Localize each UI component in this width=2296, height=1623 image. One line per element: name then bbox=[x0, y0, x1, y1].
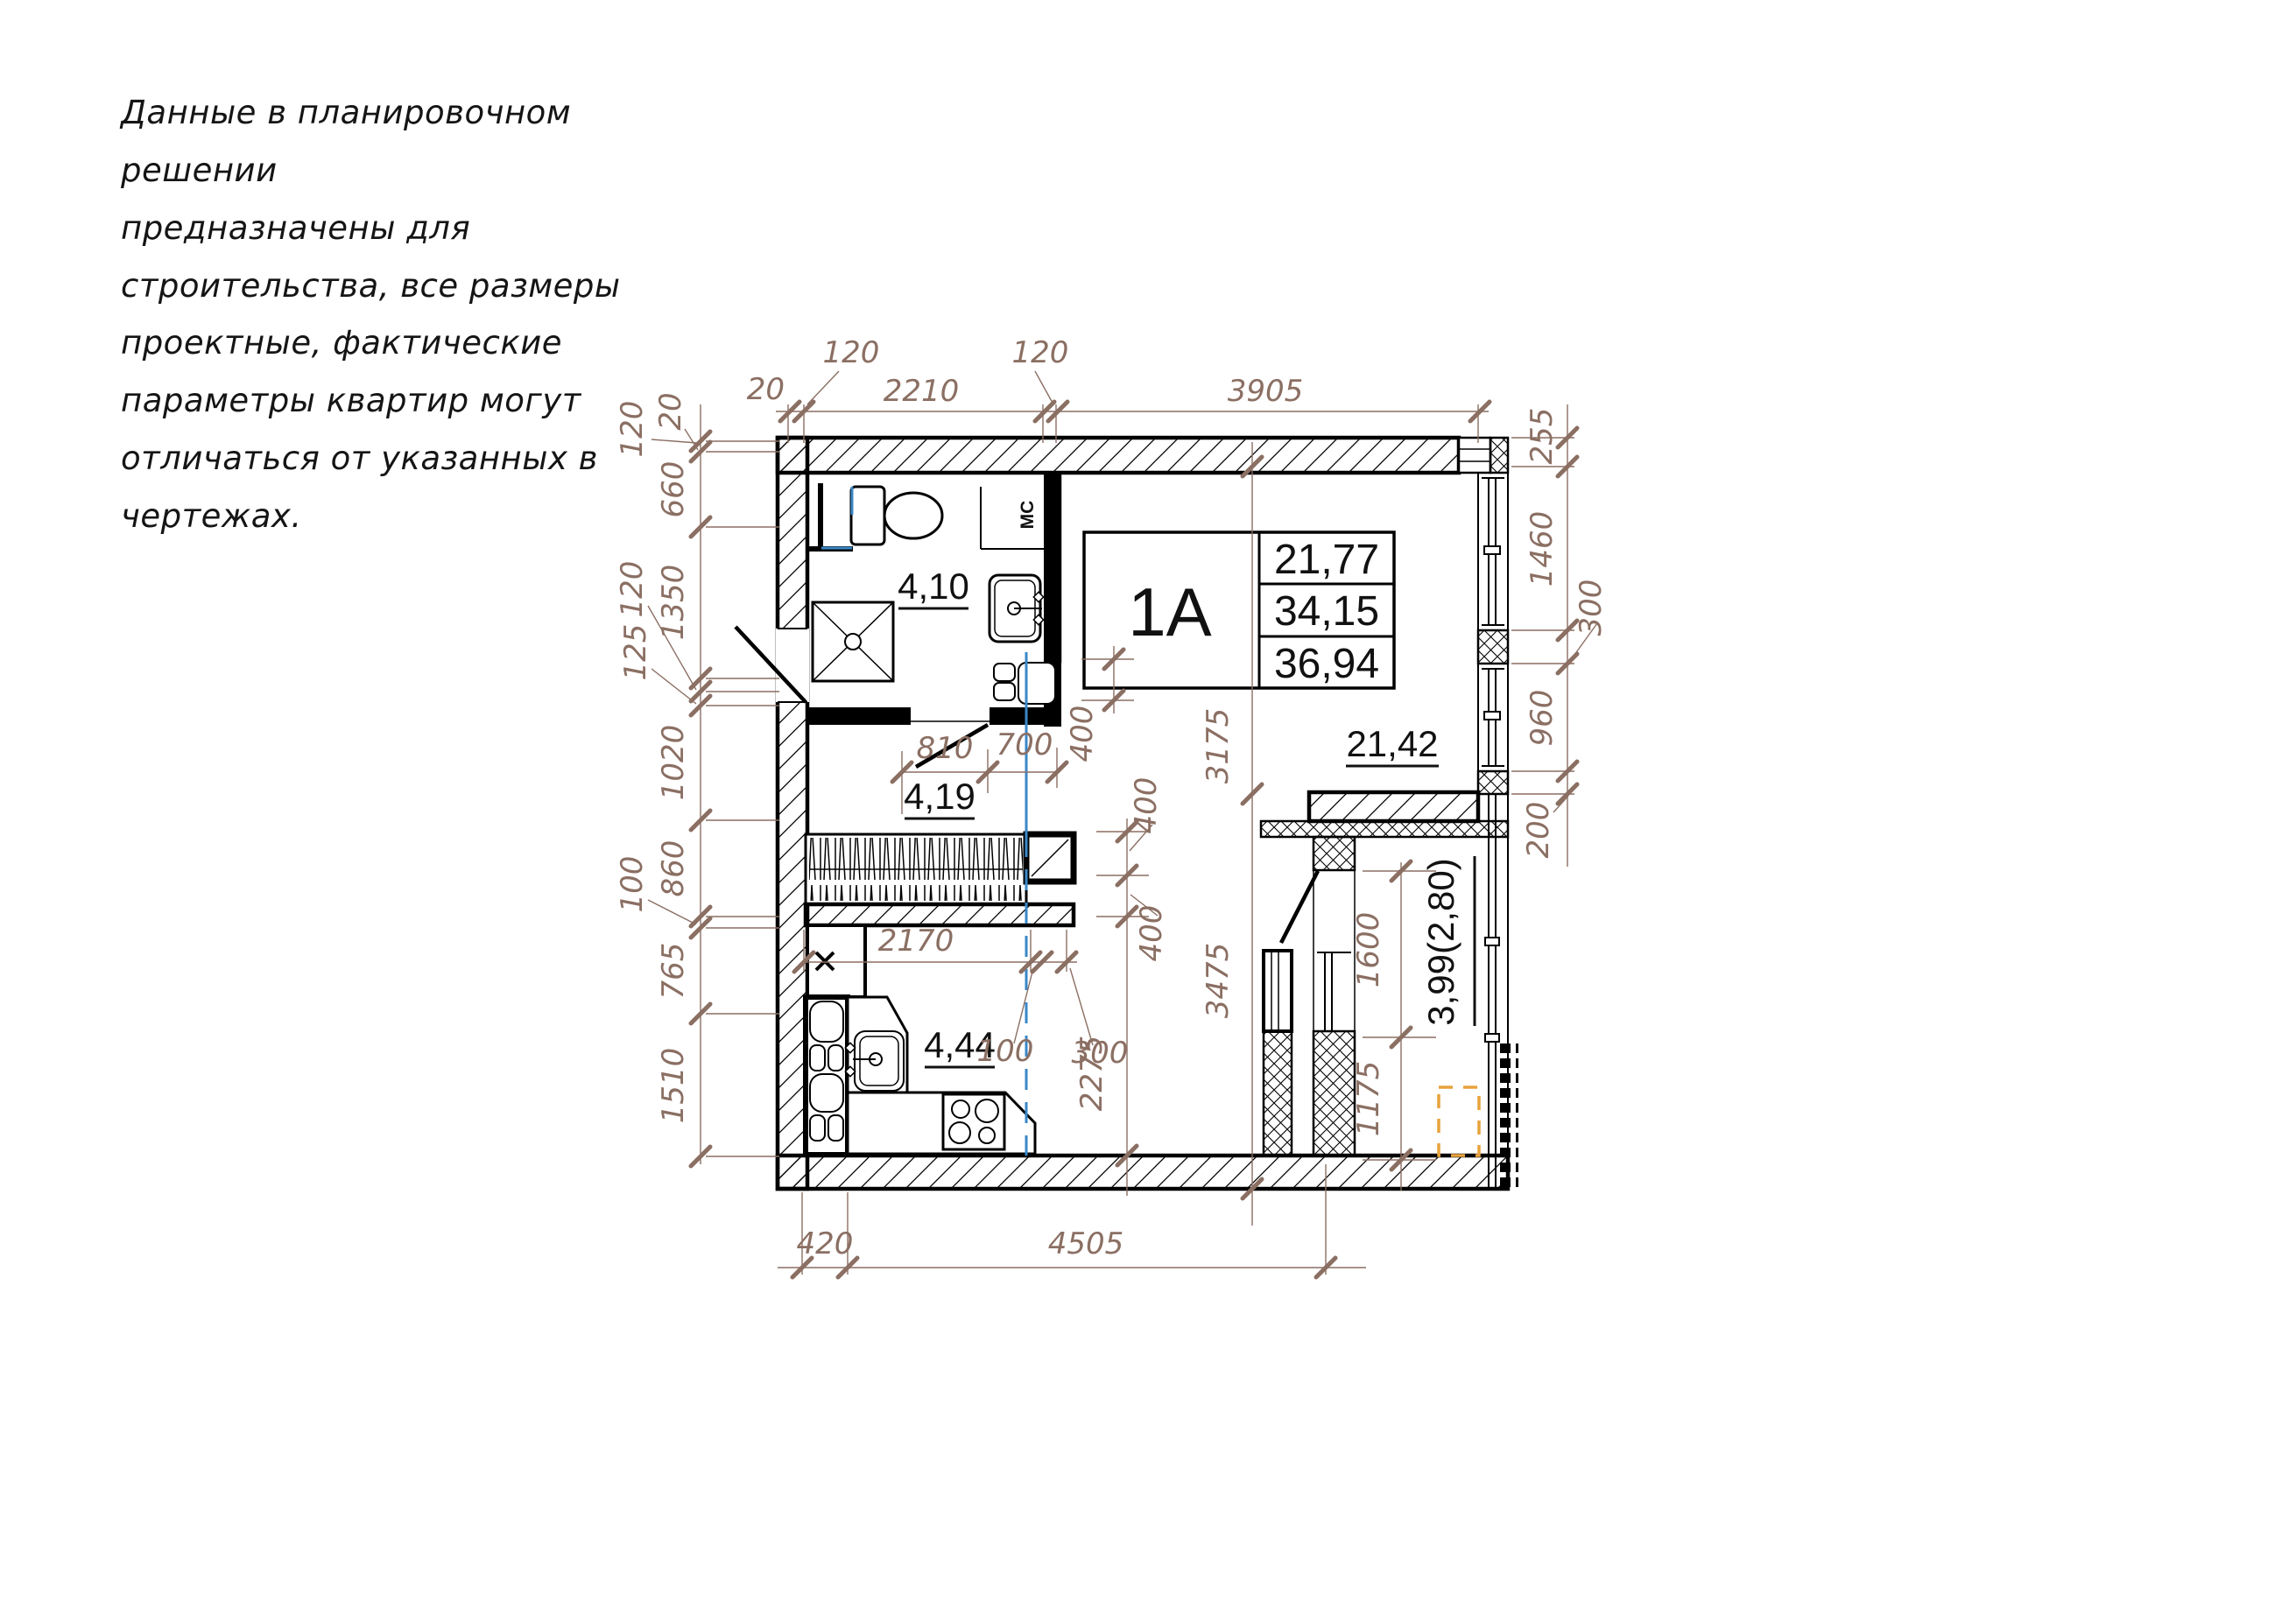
dim-left-120a: 120 bbox=[615, 401, 650, 458]
top-right-pier bbox=[1490, 438, 1508, 473]
dim-3475: 3475 bbox=[1201, 943, 1236, 1019]
hall-pier bbox=[1026, 834, 1074, 882]
dim-niche-400a: 400 bbox=[1065, 706, 1100, 762]
toilet-niche-wall bbox=[806, 483, 853, 549]
entry-door bbox=[736, 627, 809, 702]
balcony-glazing bbox=[1485, 794, 1518, 1189]
dim-left-120b: 120 bbox=[615, 561, 650, 618]
dim-left: 120 20 660 1350 120 125 1020 860 100 765… bbox=[615, 392, 779, 1166]
window-pier bbox=[1478, 630, 1508, 664]
top-wall bbox=[778, 438, 1459, 473]
dim-right-960: 960 bbox=[1525, 690, 1560, 747]
dim-hall-810: 810 bbox=[917, 731, 974, 766]
bathroom-door-marker bbox=[821, 487, 852, 548]
kitchen-sink bbox=[845, 1031, 904, 1091]
dim-left-860: 860 bbox=[656, 840, 691, 897]
dim-hall-700: 700 bbox=[997, 727, 1053, 762]
dim-right-1460: 1460 bbox=[1525, 511, 1560, 587]
dim-top-20: 20 bbox=[747, 372, 785, 407]
wardrobe bbox=[806, 834, 1026, 904]
dim-bottom-420: 420 bbox=[797, 1226, 854, 1261]
bathroom-sink bbox=[990, 575, 1044, 642]
dim-3175: 3175 bbox=[1201, 708, 1236, 784]
balcony-slab-joint bbox=[1478, 771, 1508, 794]
window-lower bbox=[1482, 669, 1504, 766]
dim-top-120b: 120 bbox=[1012, 335, 1069, 370]
living-south-window bbox=[1264, 951, 1292, 1156]
info-table: 1A 21,77 34,15 36,94 bbox=[1084, 532, 1394, 688]
area-value-1: 21,77 bbox=[1274, 537, 1379, 583]
balcony-area-label: 3,99(2,80) bbox=[1420, 858, 1461, 1025]
dim-niche-400c: 400 bbox=[1134, 905, 1169, 962]
washing-machine-label: МС bbox=[1018, 501, 1038, 530]
area-value-3: 36,94 bbox=[1274, 641, 1379, 687]
dim-left-20: 20 bbox=[653, 392, 688, 430]
balcony-door-leaf bbox=[1281, 871, 1318, 943]
bathroom-area-label: 4,10 bbox=[898, 566, 969, 607]
stove bbox=[943, 1094, 1004, 1149]
area-value-2: 34,15 bbox=[1274, 588, 1379, 635]
right-wall bbox=[1478, 438, 1508, 794]
dim-left-765: 765 bbox=[656, 943, 691, 1000]
dim-left-1020: 1020 bbox=[656, 725, 691, 801]
dim-right-200: 200 bbox=[1521, 802, 1556, 859]
living-room-area-label: 21,42 bbox=[1346, 723, 1438, 764]
dim-left-100: 100 bbox=[615, 856, 650, 913]
left-wall bbox=[778, 438, 807, 1189]
ac-unit-marker bbox=[1439, 1087, 1479, 1156]
vent-x-marker bbox=[807, 925, 865, 997]
hallway-area-label: 4,19 bbox=[904, 776, 975, 817]
window-upper bbox=[1482, 478, 1504, 625]
dim-left-660: 660 bbox=[656, 461, 691, 518]
floor-plan: МС bbox=[0, 0, 2296, 1623]
dim-right-300: 300 bbox=[1574, 580, 1609, 636]
balcony-window bbox=[1317, 952, 1351, 1031]
dim-bottom-4505: 4505 bbox=[1048, 1226, 1124, 1261]
dim-balcony-1175: 1175 bbox=[1351, 1061, 1386, 1137]
dim-top-120a: 120 bbox=[823, 335, 880, 370]
top-wall-niche bbox=[1459, 438, 1490, 473]
unit-label: 1A bbox=[1128, 573, 1211, 650]
dim-gap-100: 100 bbox=[977, 1034, 1034, 1069]
dim-niche-400b: 400 bbox=[1129, 777, 1164, 834]
dim-right: 255 1460 300 960 200 bbox=[1511, 404, 1609, 867]
dim-wardrobe-2170: 2170 bbox=[878, 924, 954, 959]
dim-right-255: 255 bbox=[1525, 408, 1560, 465]
dim-balcony-1600: 1600 bbox=[1351, 912, 1386, 988]
shower bbox=[813, 602, 893, 681]
dim-top-2210: 2210 bbox=[884, 374, 960, 409]
dim-top: 20 120 2210 120 3905 bbox=[747, 335, 1490, 443]
hall-kitchen-band bbox=[806, 904, 1074, 925]
washer-unit bbox=[994, 663, 1055, 704]
dim-top-3905: 3905 bbox=[1228, 374, 1304, 409]
toilet bbox=[851, 487, 942, 545]
dim-kitchen-2275: 2275 bbox=[1074, 1036, 1109, 1112]
fridge-cabinets bbox=[806, 997, 848, 1155]
dim-left-125: 125 bbox=[618, 624, 653, 681]
dim-left-1510: 1510 bbox=[656, 1048, 691, 1124]
balcony-railing bbox=[1499, 1042, 1518, 1189]
